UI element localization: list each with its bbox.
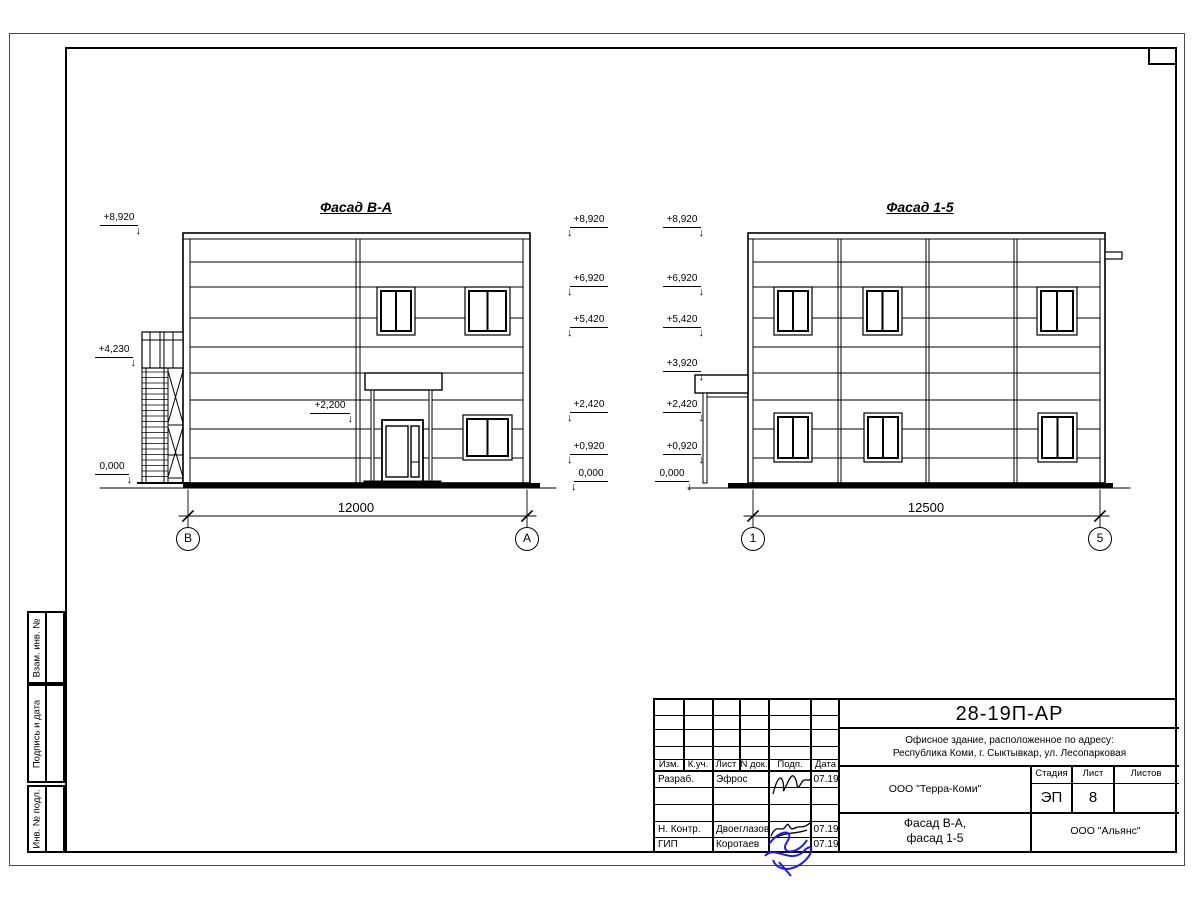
level-mark: +4,230↓ — [95, 344, 133, 358]
level-mark: +2,200↓ — [310, 400, 350, 414]
facade-ba-building — [100, 233, 556, 488]
sheet-title: Фасад В-А, фасад 1-5 — [840, 812, 1030, 855]
sheet-label: Лист — [1073, 768, 1113, 780]
level-arrow-icon: ↓ — [699, 328, 705, 338]
level-mark: +0,920↓ — [570, 441, 608, 455]
side-box-field — [47, 787, 63, 851]
plinth-ba — [183, 483, 540, 488]
level-value: 0,000 — [578, 468, 603, 479]
row-role: Разраб. — [658, 772, 712, 787]
level-arrow-icon: ↓ — [131, 358, 137, 368]
level-value: +3,920 — [667, 358, 698, 369]
level-value: 0,000 — [659, 468, 684, 479]
col-kuch: К.уч. — [684, 759, 712, 771]
fire-escape-stair — [138, 332, 188, 483]
level-arrow-icon: ↓ — [567, 328, 573, 338]
level-arrow-icon: ↓ — [687, 482, 693, 492]
title-block: Изм. К.уч. Лист N док. Подп. Дата Разраб… — [653, 698, 1177, 853]
side-box-vzam: Взам. инв. № — [27, 611, 65, 684]
sheets-label: Листов — [1115, 768, 1177, 780]
level-arrow-icon: ↓ — [699, 455, 705, 465]
level-mark: 0,000↓ — [655, 468, 689, 482]
level-mark: +6,920↓ — [663, 273, 701, 287]
level-mark: +3,920↓ — [663, 358, 701, 372]
level-mark: +2,420↓ — [663, 399, 701, 413]
level-mark: +5,420↓ — [570, 314, 608, 328]
axis-bubble-a: А — [515, 527, 539, 551]
level-value: +2,200 — [315, 400, 346, 411]
side-box-field — [47, 686, 63, 781]
level-mark: 0,000↓ — [95, 461, 129, 475]
row-date: 07.19 — [812, 772, 840, 787]
level-mark: +5,420↓ — [663, 314, 701, 328]
facade-ba-title: Фасад В-А — [281, 199, 431, 215]
level-arrow-icon: ↓ — [567, 455, 573, 465]
level-value: +0,920 — [667, 441, 698, 452]
organization-name: ООО "Терра-Коми" — [840, 767, 1030, 812]
level-arrow-icon: ↓ — [136, 226, 142, 236]
document-code: 28-19П-АР — [840, 700, 1179, 728]
side-box-inv: Инв. № подл. — [27, 785, 65, 853]
level-arrow-icon: ↓ — [567, 287, 573, 297]
side-box-podpis: Подпись и дата — [27, 684, 65, 783]
roof-outlet — [1105, 252, 1122, 259]
col-list: Лист — [713, 759, 739, 771]
row-name: Эфрос — [716, 772, 768, 787]
signature-gip — [761, 826, 823, 884]
level-arrow-icon: ↓ — [699, 228, 705, 238]
level-mark: 0,000↓ — [574, 468, 608, 482]
level-value: +0,920 — [574, 441, 605, 452]
contractor-name: ООО "Альянс" — [1032, 812, 1179, 851]
side-box-field — [47, 613, 63, 682]
side-box-label: Взам. инв. № — [32, 618, 43, 677]
level-arrow-icon: ↓ — [348, 414, 354, 424]
level-arrow-icon: ↓ — [699, 287, 705, 297]
level-value: +8,920 — [104, 212, 135, 223]
level-mark: +8,920↓ — [100, 212, 138, 226]
level-value: +8,920 — [667, 214, 698, 225]
row-role: ГИП — [658, 837, 712, 852]
level-arrow-icon: ↓ — [571, 482, 577, 492]
level-value: 0,000 — [99, 461, 124, 472]
stage-label: Стадия — [1032, 768, 1071, 780]
dimension-value-ba: 12000 — [306, 500, 406, 515]
level-mark: +0,920↓ — [663, 441, 701, 455]
entrance-door — [382, 420, 423, 483]
axis-bubble-b: В — [176, 527, 200, 551]
col-ndok: N док. — [739, 759, 769, 771]
facade-15-building — [688, 233, 1130, 488]
facade-15-title: Фасад 1-5 — [845, 199, 995, 215]
drawing-sheet: Фасад В-А Фасад 1-5 12000 12500 В А 1 5 … — [0, 0, 1200, 900]
project-description-line2: Республика Коми, г. Сыктывкар, ул. Лесоп… — [840, 747, 1179, 760]
project-description: Офисное здание, расположенное по адресу:… — [840, 729, 1179, 770]
level-mark: +8,920↓ — [570, 214, 608, 228]
level-arrow-icon: ↓ — [127, 475, 133, 485]
axis-bubble-5: 5 — [1088, 527, 1112, 551]
level-arrow-icon: ↓ — [699, 413, 705, 423]
col-izm: Изм. — [655, 759, 683, 771]
stage-value: ЭП — [1032, 784, 1071, 812]
level-value: +6,920 — [667, 273, 698, 284]
level-value: +2,420 — [667, 399, 698, 410]
side-box-label: Инв. № подл. — [32, 789, 43, 848]
level-value: +2,420 — [574, 399, 605, 410]
level-mark: +6,920↓ — [570, 273, 608, 287]
level-value: +6,920 — [574, 273, 605, 284]
sheet-title-line1: Фасад В-А, — [840, 816, 1030, 831]
level-arrow-icon: ↓ — [567, 413, 573, 423]
level-value: +4,230 — [99, 344, 130, 355]
project-description-line1: Офисное здание, расположенное по адресу: — [840, 734, 1179, 747]
side-box-label: Подпись и дата — [32, 699, 43, 767]
sheet-number: 8 — [1073, 784, 1113, 812]
level-arrow-icon: ↓ — [567, 228, 573, 238]
dimension-value-15: 12500 — [876, 500, 976, 515]
row-role: Н. Контр. — [658, 822, 712, 837]
sheet-title-line2: фасад 1-5 — [840, 831, 1030, 846]
level-mark: +8,920↓ — [663, 214, 701, 228]
level-value: +5,420 — [667, 314, 698, 325]
axis-bubble-1: 1 — [741, 527, 765, 551]
level-value: +8,920 — [574, 214, 605, 225]
col-data: Дата — [811, 759, 840, 771]
level-value: +5,420 — [574, 314, 605, 325]
level-arrow-icon: ↓ — [699, 372, 705, 382]
side-canopy — [695, 375, 748, 483]
plinth-15 — [728, 483, 1113, 488]
level-mark: +2,420↓ — [570, 399, 608, 413]
signature-razrab — [769, 770, 813, 800]
